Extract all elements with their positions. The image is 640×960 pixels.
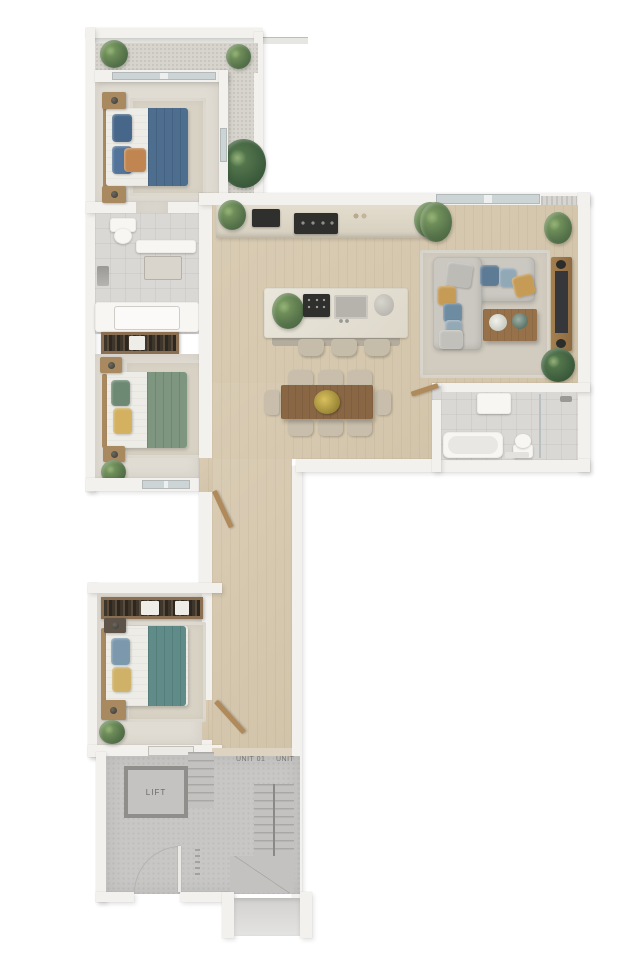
- bed1-pillow-top: [112, 114, 132, 142]
- bathroom2-tub-inner: [448, 436, 498, 454]
- lift-shaft: LIFT: [124, 766, 188, 818]
- sofa-pillow-blue-1: [480, 265, 499, 286]
- bedroom3-wardrobe: [101, 597, 203, 619]
- dining-chair-top-3: [347, 370, 372, 386]
- bed1-duvet-blue: [148, 108, 188, 186]
- bathroom1-toilet-bowl: [114, 228, 132, 244]
- bedroom1-door-opening: [136, 202, 168, 213]
- vent-grille: [541, 196, 577, 205]
- counter-jars: [352, 211, 368, 221]
- island-plant-icon: [272, 293, 304, 329]
- bathroom1-basket: [144, 256, 182, 280]
- dining-centerpiece: [314, 390, 340, 414]
- bedroom1-terrace-door: [220, 128, 227, 162]
- island-control-panel: [303, 294, 330, 317]
- bed3-pillow-blue: [111, 638, 130, 665]
- living-plant-top-right-icon: [544, 212, 572, 244]
- bedroom1-nightstand-top: [102, 92, 126, 109]
- bedroom3-top-wall: [88, 583, 222, 593]
- coffee-machine: [252, 209, 280, 227]
- island-sink: [334, 295, 368, 319]
- floor-plan-render: LIFT UNIT 01 UNIT: [0, 0, 640, 960]
- bathroom2-cabinet: [477, 393, 511, 414]
- tv-screen: [555, 271, 568, 333]
- lobby-bottom-wall-left: [96, 892, 134, 902]
- island-faucet: [338, 317, 350, 325]
- corridor-lobby-threshold: [212, 748, 292, 756]
- bed2-pillow-green: [111, 380, 130, 406]
- lobby-left-wall: [96, 752, 106, 902]
- island-pitcher: [374, 294, 394, 316]
- terrace-parapet-top: [86, 28, 262, 38]
- bathroom1-basin: [114, 306, 180, 330]
- outer-wall-left-upper: [86, 28, 95, 492]
- terrace-plant-right-icon: [226, 44, 251, 69]
- dining-chair-bottom-3: [347, 420, 372, 436]
- island-stool-1: [298, 339, 324, 356]
- tv-speaker-top: [556, 260, 566, 269]
- bedroom2-door-opening: [199, 458, 212, 492]
- lobby-door-leaf: [178, 846, 181, 892]
- bedroom1-nightstand-bottom: [102, 186, 126, 203]
- island-stool-3: [364, 339, 390, 356]
- bathroom2-shower-glass: [539, 394, 541, 458]
- dining-chair-bottom-2: [318, 420, 343, 436]
- towel-stack: [129, 336, 145, 350]
- bathroom1-shelf: [136, 240, 196, 253]
- unit-01-label: UNIT 01: [236, 756, 265, 763]
- door-annotation-marks: [195, 849, 200, 875]
- shower-head-icon: [97, 266, 109, 286]
- coffee-table-flowers: [489, 314, 507, 331]
- bedroom2-window: [142, 480, 190, 489]
- stairs-secondary: [188, 752, 214, 808]
- bathroom2-bath-mat: [505, 452, 529, 458]
- bedroom3-left-wall: [88, 583, 97, 757]
- island-stool-2: [331, 339, 357, 356]
- stairs-winder-landing: [230, 856, 294, 893]
- bathroom2-shower-head: [560, 396, 572, 402]
- bedroom3-plant-icon: [99, 720, 125, 744]
- wardrobe3-linen-stack-2: [175, 601, 189, 615]
- bathroom2-toilet-bowl: [515, 434, 531, 448]
- cooktop: [294, 213, 338, 234]
- bed3-pillow-yellow: [112, 667, 131, 692]
- bedroom2-nightstand-top: [100, 357, 122, 373]
- great-room-right-wall: [578, 193, 590, 472]
- bathroom2-top-wall: [432, 383, 590, 392]
- sofa-pillow-grey-bottom: [439, 330, 463, 349]
- entry-mat: [234, 898, 300, 936]
- kitchen-plant-left-icon: [218, 200, 246, 230]
- bed1-throw-orange: [124, 148, 146, 172]
- sofa-pillow-grey-corner: [444, 261, 473, 288]
- bottom-wall-dining: [296, 459, 590, 472]
- lift-label: LIFT: [146, 788, 166, 797]
- living-plant-bottom-right-icon: [541, 348, 575, 382]
- bedroom3-nightstand-top: [104, 618, 126, 633]
- bedroom1-window: [112, 72, 216, 80]
- bed2-duvet-green: [147, 372, 187, 448]
- dining-chair-bottom-1: [288, 420, 313, 436]
- stairs-handrail: [273, 784, 275, 858]
- bedroom2-wardrobe-shelf: [101, 332, 179, 354]
- terrace-plant-left-icon: [100, 40, 128, 68]
- coffee-table-succulent: [512, 313, 528, 329]
- bed2-pillow-yellow: [113, 408, 132, 434]
- dining-chair-left: [264, 390, 279, 415]
- dining-chair-top-1: [288, 370, 313, 386]
- bedroom3-nightstand-bottom: [101, 700, 126, 720]
- bed3-duvet-teal: [148, 626, 186, 706]
- entry-right-jamb: [300, 892, 312, 938]
- tv-speaker-bottom: [556, 339, 566, 348]
- living-room-window: [436, 194, 540, 204]
- wardrobe3-linen-stack: [141, 601, 159, 615]
- entry-left-jamb: [222, 892, 234, 938]
- living-plant-top-left-icon: [420, 202, 452, 242]
- unit-label-right: UNIT: [276, 756, 294, 763]
- dining-chair-right: [376, 390, 391, 415]
- dining-chair-top-2: [318, 370, 343, 386]
